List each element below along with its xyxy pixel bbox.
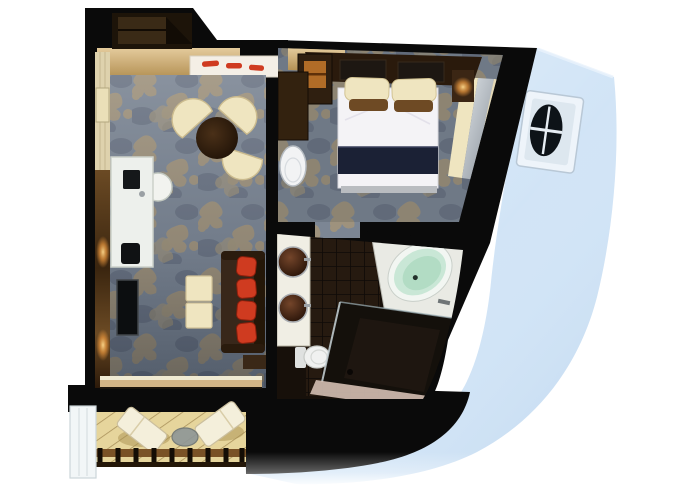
sofa (221, 251, 265, 353)
bed-foot-bench (341, 186, 437, 193)
laptop (123, 170, 140, 189)
porthole-window (516, 90, 584, 173)
bolster-cushion (349, 99, 388, 111)
bathroom-doorway-carpet (315, 222, 360, 238)
wall-sconce-glow (96, 236, 110, 268)
desk-accessory (139, 191, 145, 197)
red-cushion (236, 278, 257, 299)
red-cushion (236, 256, 257, 277)
balcony-door-frame (100, 376, 262, 380)
bedroom-vanity-desk (278, 72, 308, 140)
balcony-side-table (172, 428, 198, 446)
railing-base (94, 462, 246, 467)
canopy-cushion (340, 60, 386, 80)
ottoman (186, 276, 212, 301)
desk-stool (121, 243, 140, 264)
living-room (95, 52, 266, 389)
sofa-armrest-bottom (221, 344, 265, 353)
double-bed (338, 77, 438, 193)
vessel-sink (278, 247, 308, 277)
red-cushion (236, 300, 257, 321)
bolster-cushion (394, 100, 433, 112)
red-cushion (236, 322, 257, 344)
cream-wall-cabinet (96, 88, 109, 122)
ottoman (186, 303, 212, 328)
wall-sconce-glow (96, 329, 110, 361)
bed-navy-runner (338, 147, 438, 174)
vessel-sink (279, 294, 307, 322)
red-tray (249, 65, 264, 72)
sink-faucet (304, 304, 311, 307)
pillow (392, 78, 437, 103)
lamp-glow-right (453, 77, 473, 97)
white-oval-chair (280, 146, 306, 186)
round-dining-table (196, 117, 238, 159)
sofa-side-table (243, 355, 266, 369)
glass-privacy-partition (70, 406, 96, 478)
wall-tv (117, 280, 138, 335)
pillow (345, 77, 390, 102)
sink-faucet (304, 258, 311, 261)
shower-drain (347, 369, 353, 375)
red-tray (226, 63, 242, 69)
floorplan-canvas (0, 0, 680, 486)
toilet (295, 346, 330, 368)
floorplan-stage (0, 0, 680, 486)
bottom-fade (238, 452, 628, 486)
